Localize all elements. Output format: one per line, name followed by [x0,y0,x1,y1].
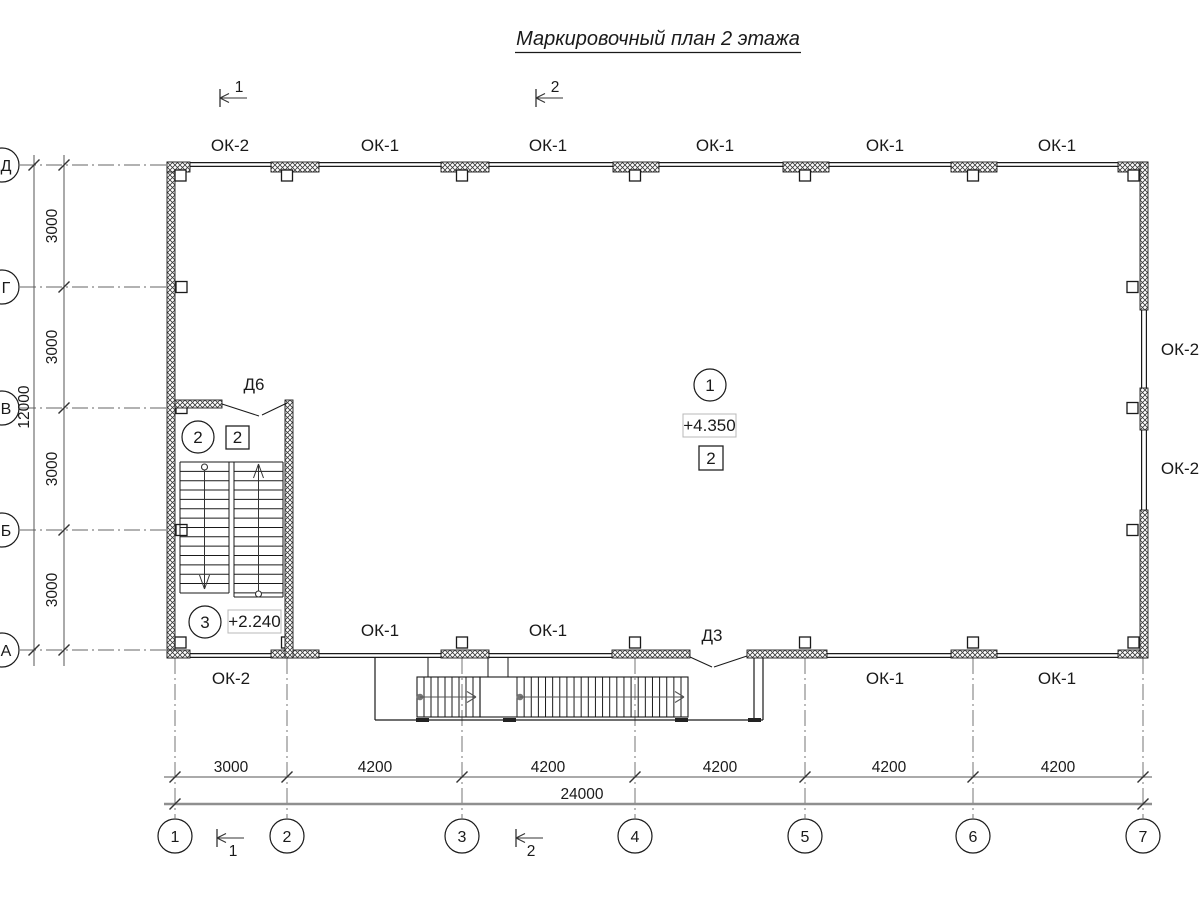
dimension-lines [29,155,1153,810]
window-label: ОК-2 [1161,340,1199,359]
elevation-mark: +4.350 [683,416,735,435]
window-label: ОК-1 [696,136,734,155]
window-label: ОК-1 [529,136,567,155]
section-mark-top-2: 2 [551,79,560,96]
door-label-d6: Д6 [244,375,265,394]
axis-number: 4 [631,829,640,846]
window-label: ОК-1 [1038,669,1076,688]
axis-letter: Б [1,523,12,540]
walls-and-windows [167,162,1148,667]
door-label-d3: Д3 [702,626,723,645]
dim-label: 4200 [531,759,566,776]
elevation-mark: +2.240 [228,612,280,631]
axis-number: 1 [171,829,180,846]
finish-type: 2 [233,428,242,447]
axis-number: 5 [801,829,810,846]
axis-letter: А [1,643,12,660]
finish-type: 2 [706,449,715,468]
dim-label: 4200 [358,759,393,776]
dim-label: 3000 [214,759,249,776]
axis-letter: Г [2,280,11,297]
dim-total-label: 24000 [560,786,603,803]
section-markers [217,89,563,847]
axis-number: 3 [458,829,467,846]
window-label: ОК-1 [361,136,399,155]
room-number: 1 [705,376,714,395]
section-mark-top-1: 1 [235,79,244,96]
axis-number: 2 [283,829,292,846]
window-label: ОК-1 [866,669,904,688]
axis-letter: В [1,401,12,418]
axis-number: 6 [969,829,978,846]
section-mark-bottom-2: 2 [527,843,536,860]
dim-label: 4200 [1041,759,1076,776]
dim-label: 3000 [44,572,61,607]
window-label: ОК-1 [866,136,904,155]
axis-letter: Д [1,158,12,175]
room-number: 2 [193,428,202,447]
drawing-title: Маркировочный план 2 этажа [516,28,800,50]
window-label: ОК-2 [1161,459,1199,478]
external-staircase [375,658,763,722]
room-number: 3 [200,613,209,632]
dim-label: 4200 [703,759,738,776]
dim-label: 3000 [44,329,61,364]
window-label: ОК-2 [212,669,250,688]
drawing-sheet: Маркировочный план 2 этажа 1 2 1 2 ОК-2 … [0,0,1200,900]
dim-label: 3000 [44,208,61,243]
dim-label: 4200 [872,759,907,776]
section-mark-bottom-1: 1 [229,843,238,860]
window-label: ОК-2 [211,136,249,155]
floor-plan-drawing: Маркировочный план 2 этажа 1 2 1 2 ОК-2 … [0,0,1200,900]
window-label: ОК-1 [1038,136,1076,155]
dim-label: 3000 [44,451,61,486]
window-label: ОК-1 [361,621,399,640]
window-label: ОК-1 [529,621,567,640]
axis-bubbles-bottom: 1 2 3 4 5 6 7 [158,819,1160,853]
axis-number: 7 [1139,829,1148,846]
